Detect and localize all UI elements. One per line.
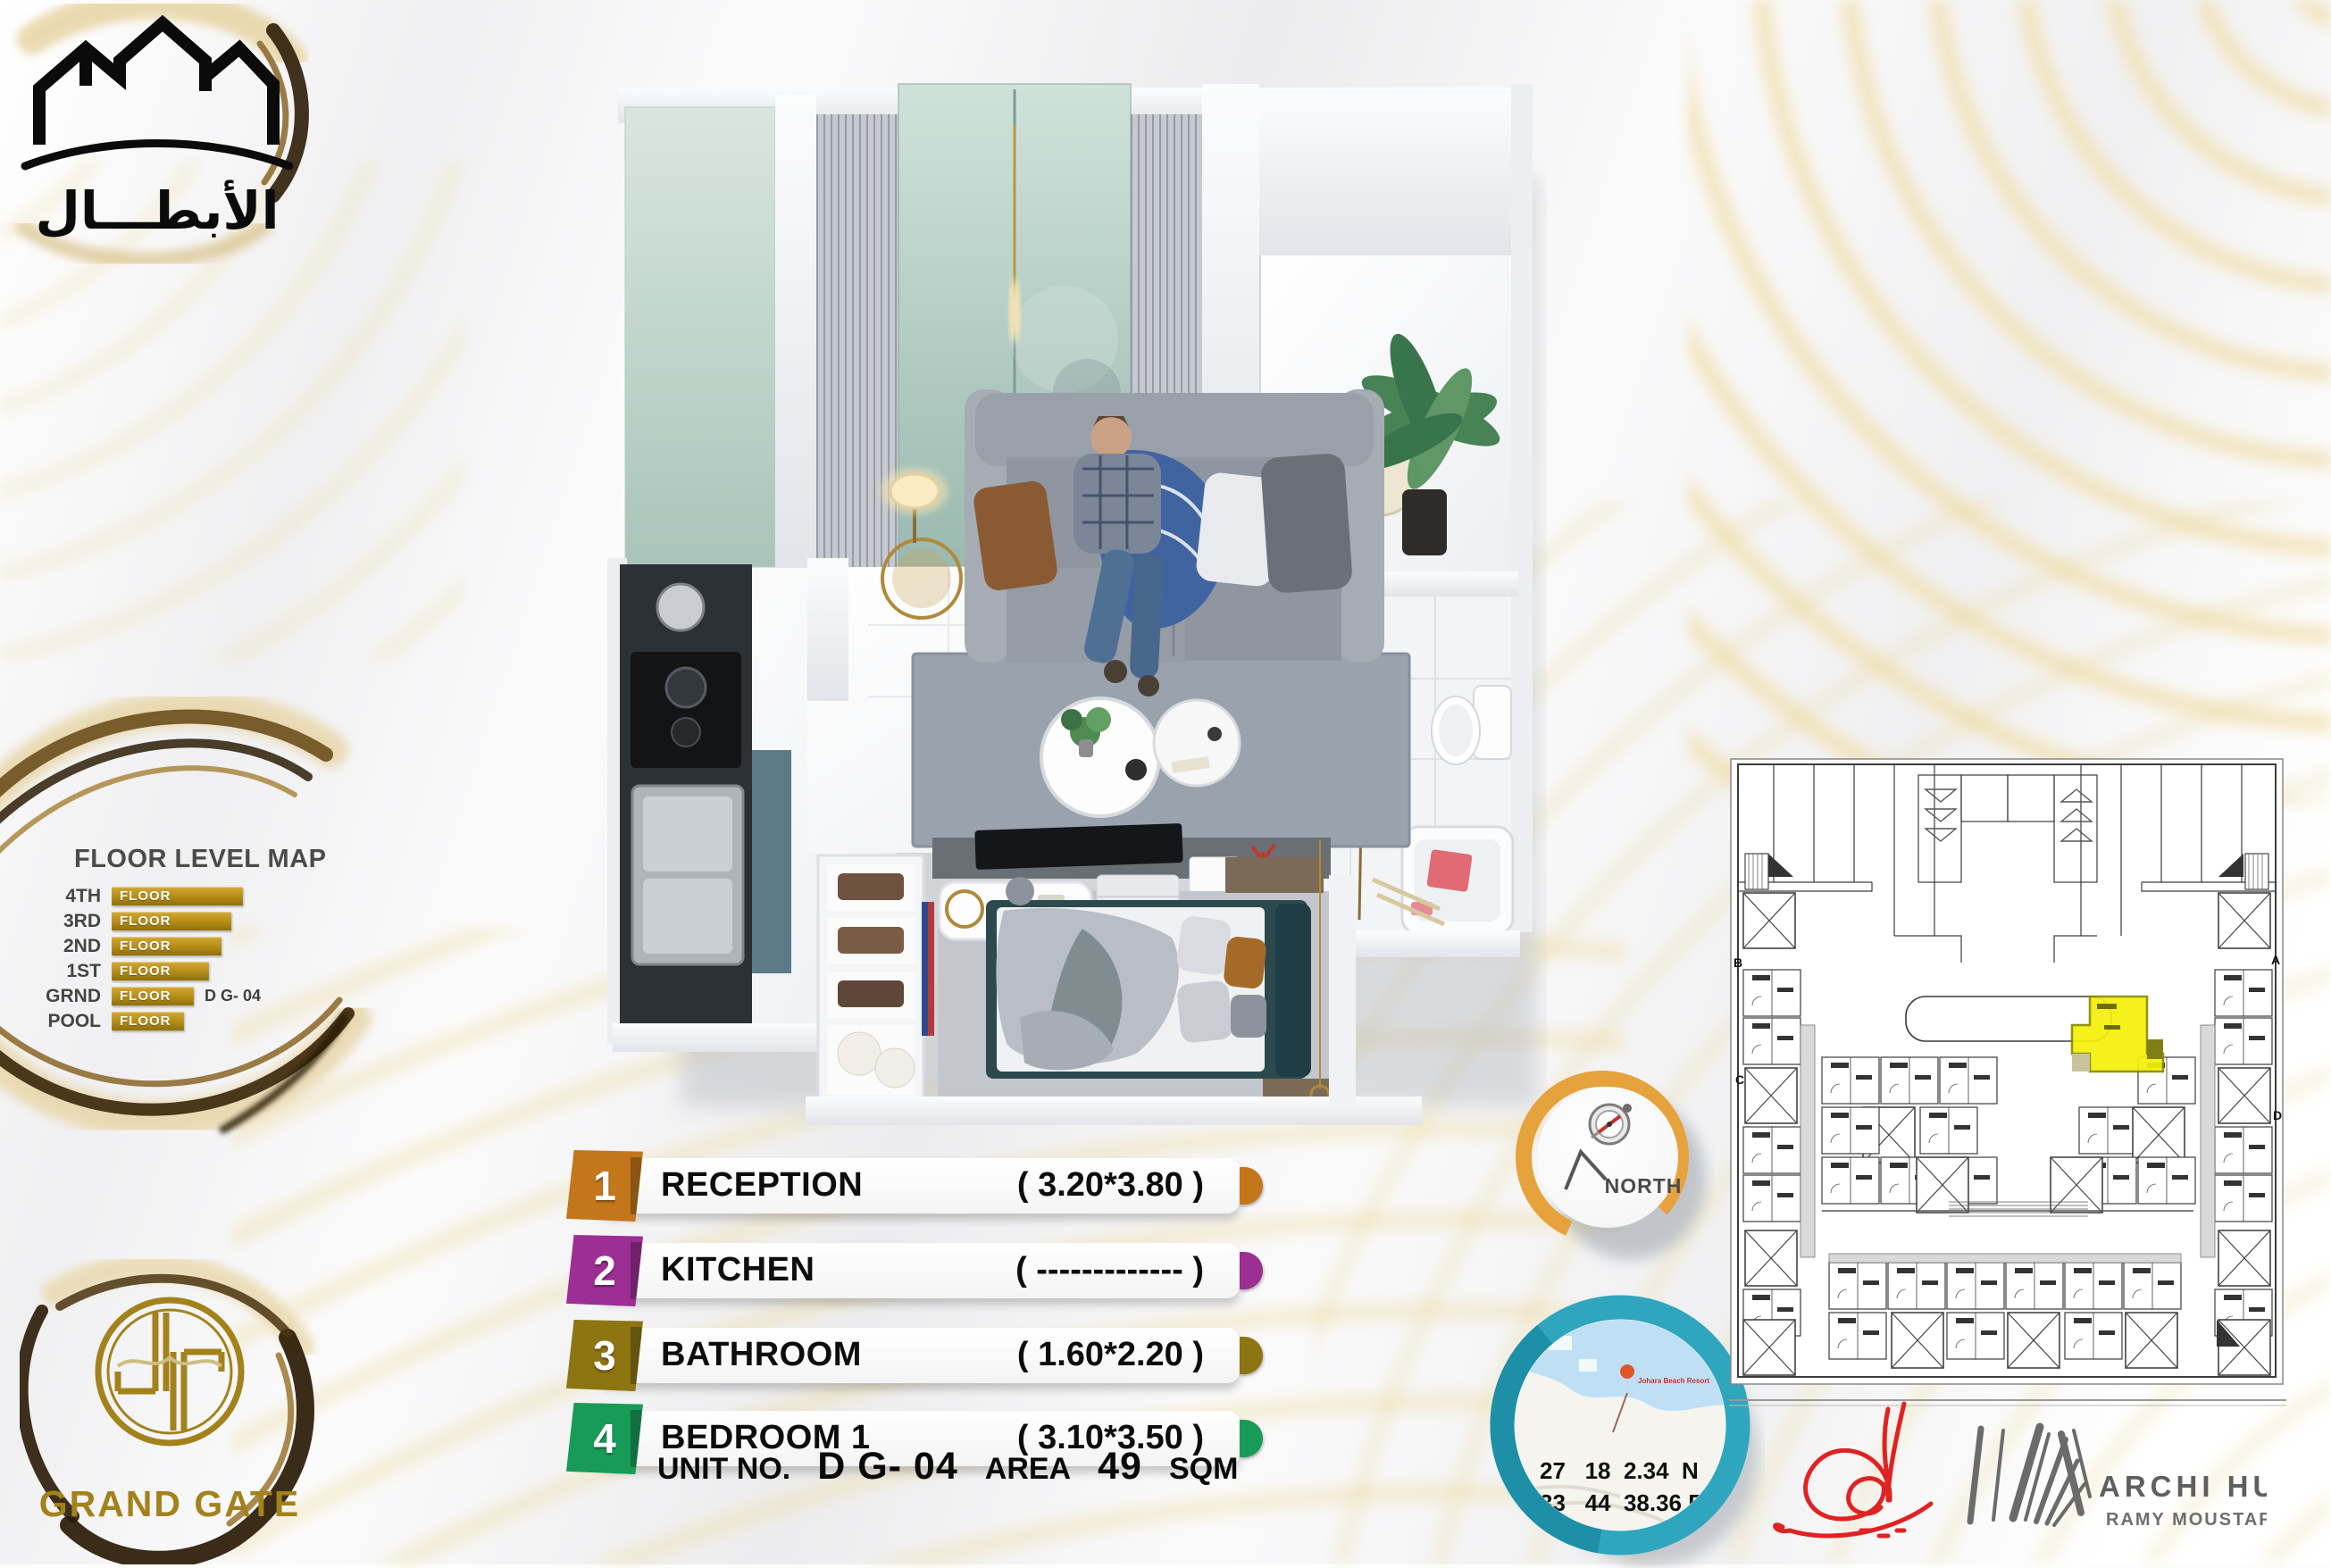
legend-color-cap (1240, 1420, 1263, 1457)
floor-row-1st: 1ST FLOOR (31, 962, 353, 980)
plan-label-d: D (2273, 1108, 2282, 1122)
kitchen-living-wall (807, 558, 848, 701)
plan-label-a: A (2271, 953, 2280, 967)
project-logo: GRAND GATE (20, 1257, 323, 1564)
pillow-2 (1176, 980, 1234, 1044)
mid-left-cluster (1822, 1057, 1997, 1213)
area-label: AREA (985, 1452, 1071, 1487)
pendant-light (1009, 279, 1020, 343)
studio-name: ARCHI HUB (2099, 1470, 2267, 1503)
legend-color-cap (1240, 1252, 1263, 1289)
architect-name: RAMY MOUSTAFA (2106, 1510, 2267, 1530)
floor-map-title: FLOOR LEVEL MAP (74, 845, 353, 874)
teal-cabinet (752, 750, 791, 973)
floor-row-pool: POOL FLOOR (31, 1012, 353, 1030)
unit-no-label: UNIT NO. (657, 1452, 790, 1487)
pin-label: Johara Beach Resort (1638, 1377, 1709, 1385)
area-value: 49 (1098, 1445, 1142, 1489)
floor-row-2nd: 2ND FLOOR (31, 937, 353, 955)
floor-row-grnd: GRND FLOOR D G- 04 (31, 987, 353, 1005)
bathtub (1402, 827, 1513, 934)
legend-room-dims: ( 1.60*2.20 ) (1017, 1336, 1204, 1374)
kettle (657, 584, 704, 630)
north-compass: NORTH (1509, 1057, 1715, 1277)
glass-wall-left (625, 107, 775, 567)
longitude: 33 44 38.36 E (1540, 1489, 1704, 1516)
area-unit: SQM (1169, 1452, 1238, 1487)
gg-monogram (98, 1300, 241, 1443)
legend-number-badge: 2 (566, 1235, 643, 1306)
unit-info: UNIT NO. D G- 04 AREA 49 SQM (657, 1445, 1238, 1489)
location-map: Johara Beach Resort 27 18 2.34 N 33 44 3… (1486, 1289, 1765, 1568)
legend-color-cap (1240, 1167, 1263, 1205)
pink-caddy (1426, 849, 1472, 892)
building-site-plan: A B C D (1729, 757, 2286, 1422)
unit-note: D G- 04 (205, 987, 261, 1005)
sofa (965, 389, 1384, 696)
legend-room-name: BATHROOM (661, 1336, 862, 1374)
developer-logo-text: الأبطـــال (36, 179, 280, 240)
right-outer-wall (1511, 84, 1533, 932)
legend-row-reception: 1 RECEPTION ( 3.20*3.80 ) (547, 1154, 1270, 1220)
apartment-3d-plan (600, 71, 1547, 1125)
rust-pillow (972, 480, 1058, 592)
houses-icon (39, 23, 273, 145)
rust-cushion (1223, 936, 1267, 989)
legend-room-dims: ( 3.20*3.80 ) (1017, 1166, 1204, 1205)
floor-row-4th: 4TH FLOOR (31, 887, 353, 905)
legend-number-badge: 4 (566, 1403, 643, 1474)
dropped-cushion (1006, 877, 1034, 905)
gold-ripple-top-right (1688, 0, 2331, 804)
legend-room-dims: ( ------------- ) (1015, 1251, 1204, 1289)
latitude: 27 18 2.34 N (1540, 1457, 1699, 1484)
floor-level-map: FLOOR LEVEL MAP 4TH FLOOR 3RD FLOOR 2ND … (31, 845, 353, 1037)
floor-row-3rd: 3RD FLOOR (31, 912, 353, 930)
legend-number-badge: 3 (566, 1320, 643, 1391)
legend-row-bathroom: 3 BATHROOM ( 1.60*2.20 ) (547, 1323, 1270, 1389)
developer-logo: الأبطـــال (5, 4, 309, 271)
headboard (1275, 904, 1311, 1077)
back-wall-right (1259, 93, 1520, 255)
plan-label-c: C (1735, 1072, 1744, 1087)
logo-swoosh (25, 144, 289, 167)
bedroom-right-wall (1329, 875, 1356, 1107)
room-legend: 1 RECEPTION ( 3.20*3.80 ) 2 KITCHEN ( --… (547, 1143, 1279, 1475)
gray-pillow (1260, 453, 1353, 594)
plan-label-b: B (1734, 955, 1742, 970)
north-label: NORTH (1605, 1174, 1683, 1197)
wall-pillar (775, 95, 816, 568)
studio-logo: ARCHI HUB RAMY MOUSTAFA (1954, 1407, 2267, 1559)
legend-row-kitchen: 2 KITCHEN ( ------------- ) (547, 1239, 1270, 1305)
legend-room-name: RECEPTION (661, 1166, 863, 1205)
gg-flourish (118, 1357, 221, 1366)
legend-number-badge: 1 (566, 1150, 643, 1222)
project-name: GRAND GATE (39, 1483, 301, 1524)
pillow-1 (1175, 914, 1232, 976)
legend-color-cap (1240, 1337, 1263, 1374)
signature (1756, 1389, 1952, 1564)
unit-no-value: D G- 04 (817, 1445, 958, 1489)
legend-room-name: KITCHEN (661, 1251, 815, 1289)
tv (974, 823, 1182, 870)
wardrobe (818, 855, 934, 1102)
bed (986, 877, 1311, 1079)
